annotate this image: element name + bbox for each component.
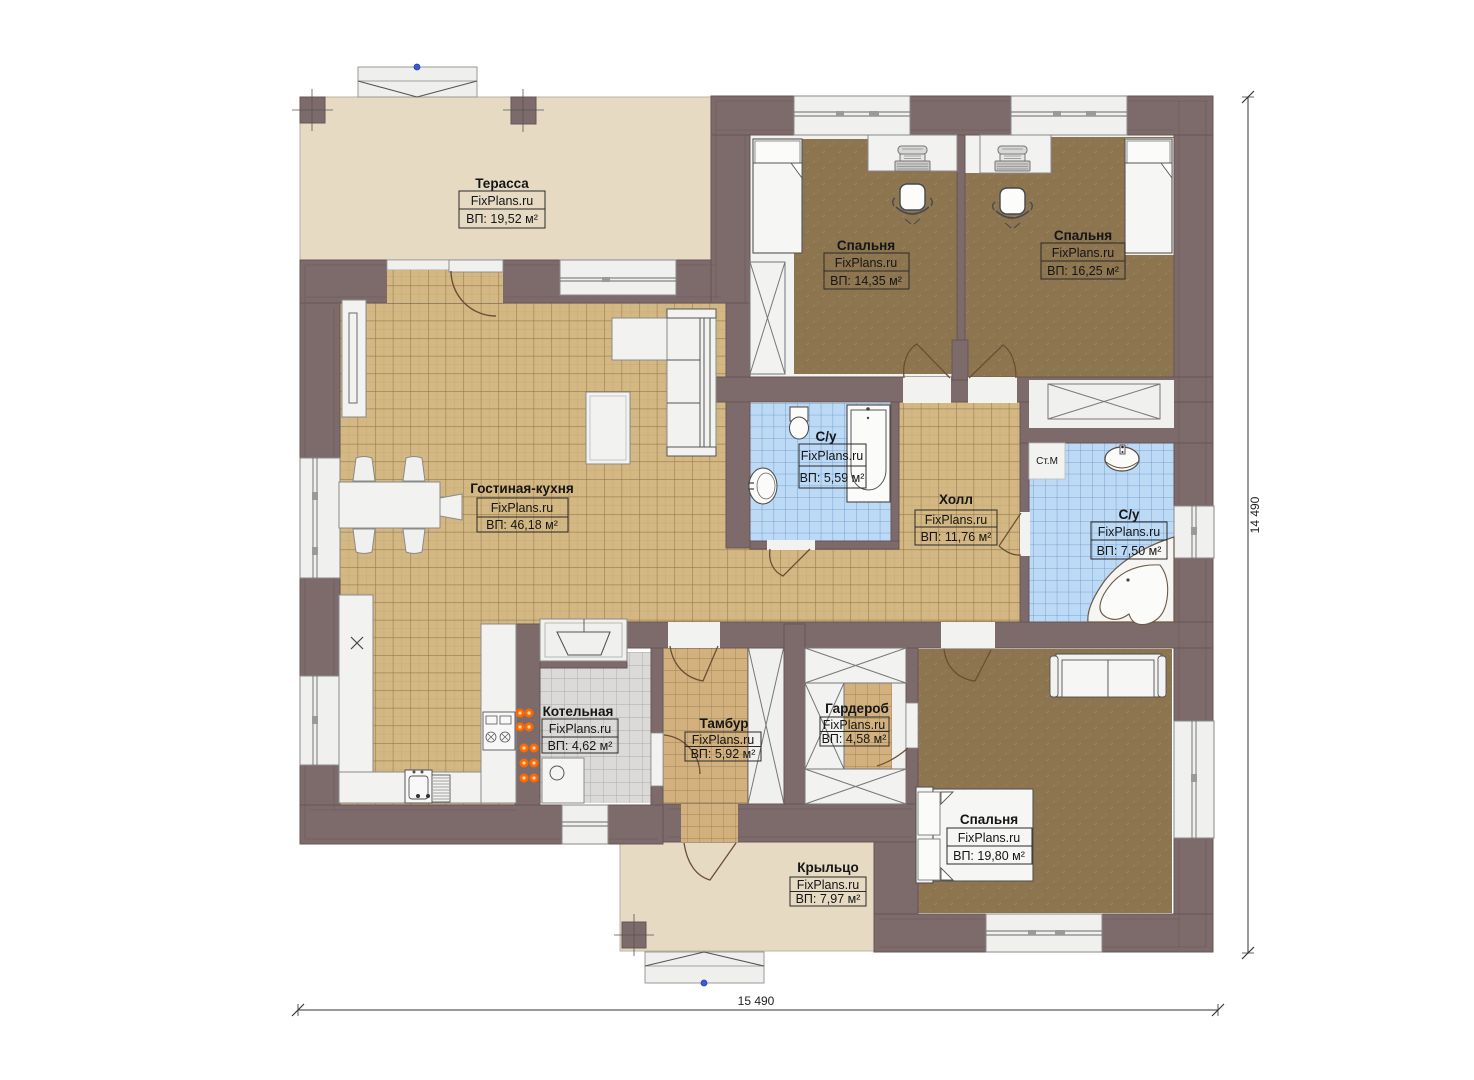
svg-text:Терасса: Терасса: [475, 176, 529, 191]
svg-text:ВП: 4,62 м²: ВП: 4,62 м²: [548, 739, 613, 753]
svg-text:ВП: 4,58 м²: ВП: 4,58 м²: [822, 732, 887, 746]
svg-text:С/у: С/у: [815, 429, 837, 444]
svg-text:Спальня: Спальня: [1054, 228, 1112, 243]
svg-text:FixPlans.ru: FixPlans.ru: [835, 256, 898, 270]
svg-text:Спальня: Спальня: [960, 812, 1018, 827]
svg-text:ВП: 46,18 м²: ВП: 46,18 м²: [486, 518, 558, 532]
svg-text:FixPlans.ru: FixPlans.ru: [471, 194, 534, 208]
svg-text:14 490: 14 490: [1248, 496, 1262, 533]
svg-text:ВП: 7,97 м²: ВП: 7,97 м²: [796, 892, 861, 906]
svg-text:ВП: 11,76 м²: ВП: 11,76 м²: [921, 530, 992, 544]
svg-text:15 490: 15 490: [738, 994, 775, 1008]
svg-text:FixPlans.ru: FixPlans.ru: [801, 449, 864, 463]
svg-text:ВП: 5,92 м²: ВП: 5,92 м²: [691, 747, 756, 761]
svg-text:Гостиная-кухня: Гостиная-кухня: [470, 481, 573, 496]
svg-text:FixPlans.ru: FixPlans.ru: [1052, 246, 1115, 260]
svg-text:Котельная: Котельная: [543, 704, 614, 719]
svg-text:ВП: 5,59 м²: ВП: 5,59 м²: [800, 471, 865, 485]
svg-text:ВП: 19,52 м²: ВП: 19,52 м²: [466, 212, 538, 226]
svg-text:FixPlans.ru: FixPlans.ru: [823, 718, 886, 732]
svg-text:Тамбур: Тамбур: [700, 716, 749, 731]
svg-text:ВП: 19,80 м²: ВП: 19,80 м²: [953, 849, 1025, 863]
svg-text:ВП: 7,50 м²: ВП: 7,50 м²: [1097, 544, 1162, 558]
svg-text:ВП: 16,25 м²: ВП: 16,25 м²: [1047, 264, 1119, 278]
svg-text:Крыльцо: Крыльцо: [797, 860, 858, 875]
svg-text:Ст.М: Ст.М: [1036, 456, 1058, 467]
svg-text:Холл: Холл: [939, 492, 973, 507]
svg-text:FixPlans.ru: FixPlans.ru: [692, 733, 755, 747]
svg-text:ВП: 14,35 м²: ВП: 14,35 м²: [830, 274, 902, 288]
svg-text:С/у: С/у: [1118, 507, 1140, 522]
svg-text:Спальня: Спальня: [837, 238, 895, 253]
svg-text:FixPlans.ru: FixPlans.ru: [1098, 525, 1161, 539]
svg-text:FixPlans.ru: FixPlans.ru: [925, 513, 988, 527]
svg-text:FixPlans.ru: FixPlans.ru: [797, 878, 860, 892]
svg-text:FixPlans.ru: FixPlans.ru: [549, 722, 612, 736]
svg-text:FixPlans.ru: FixPlans.ru: [958, 831, 1021, 845]
svg-text:Гардероб: Гардероб: [825, 701, 889, 716]
svg-text:FixPlans.ru: FixPlans.ru: [491, 501, 554, 515]
